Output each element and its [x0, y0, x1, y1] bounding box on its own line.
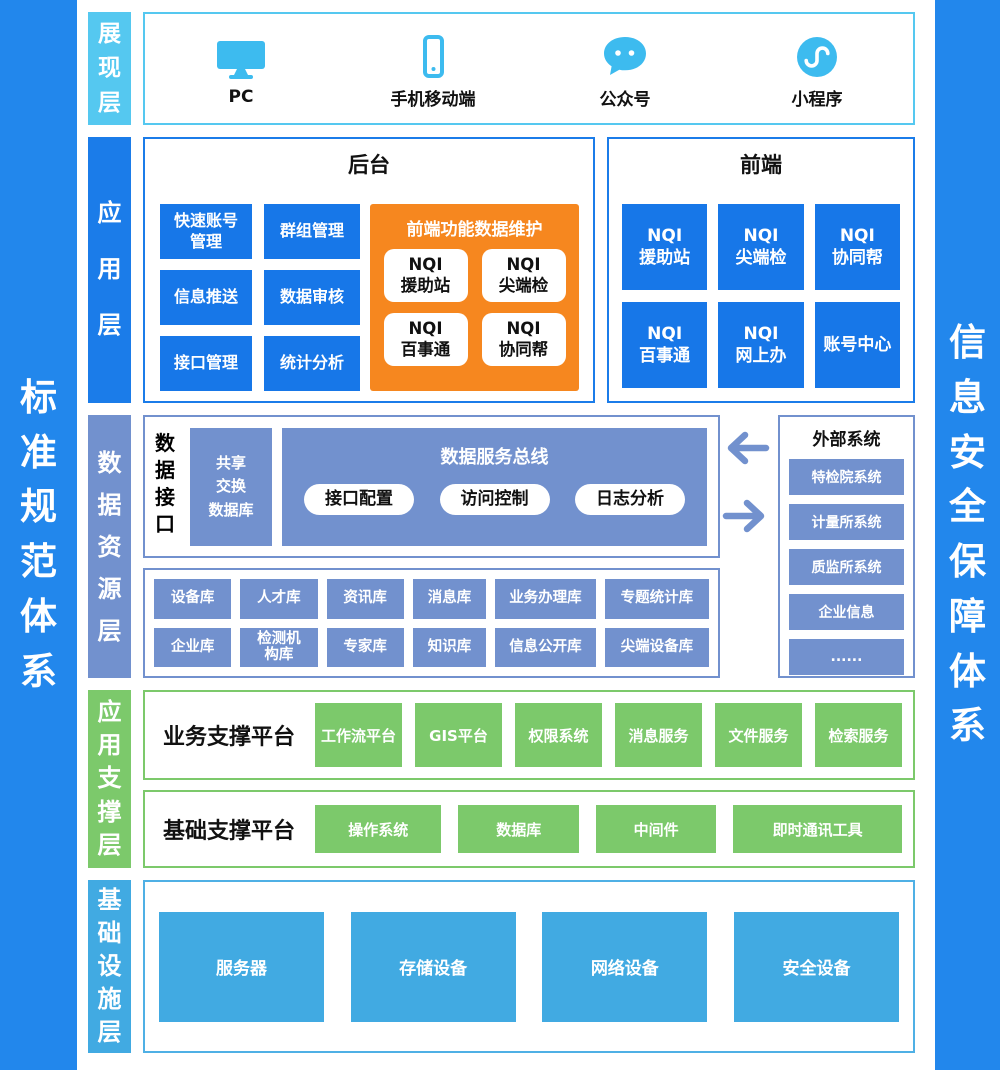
backend-module: 统计分析 — [264, 336, 360, 391]
mobile-icon — [411, 28, 455, 80]
business-module: 文件服务 — [715, 703, 802, 767]
external-system-box: 企业信息 — [789, 594, 904, 630]
business-platform-modules: 工作流平台 GIS平台 权限系统 消息服务 文件服务 检索服务 — [315, 703, 902, 767]
backend-module: 接口管理 — [160, 336, 252, 391]
database-box: 人才库 — [240, 579, 317, 619]
tab-infrastructure-layer: 基础设施层 — [88, 880, 131, 1053]
basic-module: 操作系统 — [315, 805, 441, 853]
basic-platform-title: 基础支撑平台 — [163, 813, 315, 845]
basic-module: 即时通讯工具 — [733, 805, 902, 853]
external-system-box: 特检院系统 — [789, 459, 904, 495]
external-system-box: 计量所系统 — [789, 504, 904, 540]
database-box: 尖端设备库 — [605, 628, 709, 668]
presentation-item-label: 小程序 — [792, 85, 843, 110]
bus-module: 访问控制 — [440, 484, 550, 515]
presentation-item-label: PC — [229, 87, 254, 107]
maintenance-module: NQI 协同帮 — [482, 313, 566, 366]
security-system-bar: 信息安全保障体系 — [935, 0, 1000, 1070]
frontend-modules: NQI 援助站 NQI 尖端检 NQI 协同帮 NQI 百事通 NQI 网上办 … — [622, 204, 900, 388]
tab-presentation-layer: 展现层 — [88, 12, 131, 125]
presentation-layer-box: PC 手机移动端 公众号 — [143, 12, 915, 125]
database-box: 业务办理库 — [495, 579, 595, 619]
maintenance-title: 前端功能数据维护 — [370, 215, 579, 240]
frontend-module: NQI 援助站 — [622, 204, 707, 290]
business-module: 工作流平台 — [315, 703, 402, 767]
database-box: 专题统计库 — [605, 579, 709, 619]
tab-application-support-layer: 应用支撑层 — [88, 690, 131, 868]
infrastructure-item: 网络设备 — [542, 912, 707, 1022]
frontend-module: NQI 网上办 — [718, 302, 803, 388]
right-arrow-icon — [726, 503, 761, 529]
external-system-box: 质监所系统 — [789, 549, 904, 585]
tab-application-layer: 应用层 — [88, 137, 131, 403]
basic-module: 数据库 — [458, 805, 578, 853]
data-interface-box: 数据接口 共享 交换 数据库 数据服务总线 接口配置 访问控制 日志分析 — [143, 415, 720, 558]
infrastructure-item: 存储设备 — [351, 912, 516, 1022]
pc-icon — [214, 30, 268, 82]
backend-box: 后台 快速账号 管理 群组管理 信息推送 数据审核 接口管理 统计分析 前端功能… — [143, 137, 595, 403]
maintenance-module: NQI 百事通 — [384, 313, 468, 366]
backend-module: 群组管理 — [264, 204, 360, 259]
external-system-box: ...... — [789, 639, 904, 675]
business-module: GIS平台 — [415, 703, 502, 767]
presentation-item-official-account: 公众号 — [529, 28, 721, 110]
business-module: 权限系统 — [515, 703, 602, 767]
backend-title: 后台 — [145, 149, 593, 179]
official-account-icon — [600, 28, 650, 80]
business-support-platform-box: 业务支撑平台 工作流平台 GIS平台 权限系统 消息服务 文件服务 检索服务 — [143, 690, 915, 780]
presentation-item-mobile: 手机移动端 — [337, 28, 529, 110]
database-box: 信息公开库 — [495, 628, 595, 668]
presentation-item-label: 公众号 — [600, 85, 651, 110]
database-box: 企业库 — [154, 628, 231, 668]
architecture-diagram: 标准规范体系 信息安全保障体系 展现层 应用层 数据资源层 应用支撑层 基础设施… — [0, 0, 1000, 1070]
maintenance-module: NQI 援助站 — [384, 249, 468, 302]
frontend-data-maintenance-panel: 前端功能数据维护 NQI 援助站 NQI 尖端检 NQI 百事通 NQI 协同帮 — [370, 204, 579, 391]
backend-modules: 快速账号 管理 群组管理 信息推送 数据审核 接口管理 统计分析 — [160, 204, 360, 391]
basic-support-platform-box: 基础支撑平台 操作系统 数据库 中间件 即时通讯工具 — [143, 790, 915, 868]
bus-module: 日志分析 — [575, 484, 685, 515]
maintenance-module: NQI 尖端检 — [482, 249, 566, 302]
business-platform-title: 业务支撑平台 — [163, 719, 315, 751]
basic-module: 中间件 — [596, 805, 716, 853]
data-interface-label: 数据接口 — [154, 430, 176, 538]
standards-system-label: 标准规范体系 — [18, 371, 59, 700]
backend-module: 快速账号 管理 — [160, 204, 252, 259]
frontend-module: NQI 尖端检 — [718, 204, 803, 290]
standards-system-bar: 标准规范体系 — [0, 0, 77, 1070]
left-arrow-icon — [731, 435, 766, 461]
frontend-module: NQI 百事通 — [622, 302, 707, 388]
frontend-module: NQI 协同帮 — [815, 204, 900, 290]
infrastructure-item: 服务器 — [159, 912, 324, 1022]
tab-application-label: 应用层 — [96, 186, 122, 354]
infrastructure-box: 服务器 存储设备 网络设备 安全设备 — [143, 880, 915, 1053]
security-system-label: 信息安全保障体系 — [947, 316, 988, 754]
basic-platform-modules: 操作系统 数据库 中间件 即时通讯工具 — [315, 805, 902, 853]
databases-box: 设备库 人才库 资讯库 消息库 业务办理库 专题统计库 企业库 检测机 构库 专… — [143, 568, 720, 678]
shared-exchange-database: 共享 交换 数据库 — [190, 428, 272, 546]
database-box: 专家库 — [327, 628, 404, 668]
frontend-box: 前端 NQI 援助站 NQI 尖端检 NQI 协同帮 NQI 百事通 NQI 网… — [607, 137, 915, 403]
tab-application-support-label: 应用支撑层 — [96, 696, 122, 862]
data-service-bus-title: 数据服务总线 — [282, 443, 707, 469]
frontend-title: 前端 — [609, 149, 913, 179]
business-module: 检索服务 — [815, 703, 902, 767]
tab-presentation-label: 展现层 — [97, 17, 122, 121]
database-box: 消息库 — [413, 579, 486, 619]
tab-data-resource-label: 数据资源层 — [96, 442, 122, 652]
tab-data-resource-layer: 数据资源层 — [88, 415, 131, 678]
tab-infrastructure-label: 基础设施层 — [96, 884, 122, 1050]
bus-modules: 接口配置 访问控制 日志分析 — [282, 484, 707, 515]
business-module: 消息服务 — [615, 703, 702, 767]
mini-program-icon — [794, 28, 840, 80]
database-box: 设备库 — [154, 579, 231, 619]
bus-module: 接口配置 — [304, 484, 414, 515]
presentation-item-pc: PC — [145, 30, 337, 107]
backend-module: 数据审核 — [264, 270, 360, 325]
maintenance-modules: NQI 援助站 NQI 尖端检 NQI 百事通 NQI 协同帮 — [370, 249, 579, 366]
external-systems-box: 外部系统 特检院系统 计量所系统 质监所系统 企业信息 ...... — [778, 415, 915, 678]
presentation-item-mini-program: 小程序 — [721, 28, 913, 110]
database-box: 检测机 构库 — [240, 628, 317, 668]
presentation-item-label: 手机移动端 — [391, 85, 476, 110]
data-service-bus: 数据服务总线 接口配置 访问控制 日志分析 — [282, 428, 707, 546]
external-systems-title: 外部系统 — [780, 425, 913, 450]
database-box: 知识库 — [413, 628, 486, 668]
data-exchange-arrows — [722, 426, 770, 538]
infrastructure-item: 安全设备 — [734, 912, 899, 1022]
frontend-module: 账号中心 — [815, 302, 900, 388]
backend-module: 信息推送 — [160, 270, 252, 325]
database-box: 资讯库 — [327, 579, 404, 619]
